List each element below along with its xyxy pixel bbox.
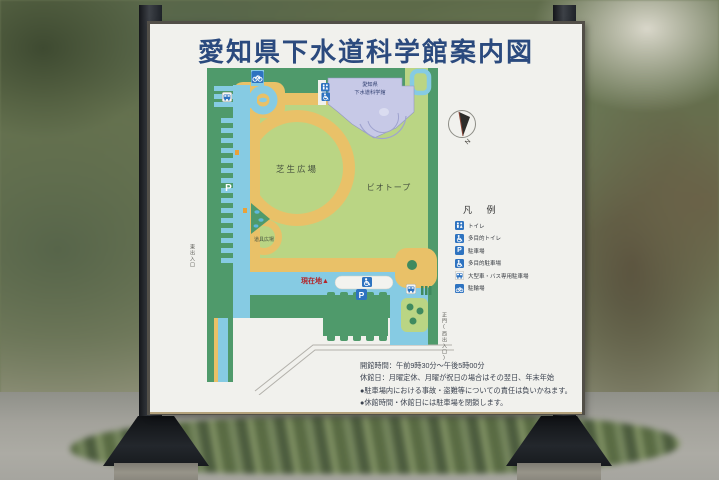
museum-building-label-line1: 愛知県 [334, 82, 406, 90]
note-closed-days: 休館日：月曜定休、月曜が祝日の場合はその翌日、年末年始 [360, 372, 580, 384]
sign-board: 愛知県下水道科学館案内図 [150, 24, 582, 414]
accessible-parking-icon [455, 259, 464, 268]
bus-parking-icon [455, 271, 464, 280]
sign-post-base-right [506, 416, 612, 480]
east-entrance-label: 東出入口 [189, 244, 196, 268]
parking-p-marker: P [359, 290, 365, 300]
legend-item-bicycle-parking: 駐輪場 [455, 284, 577, 293]
sign-title: 愛知県下水道科学館案内図 [150, 32, 582, 69]
legend-item-accessible-toilet: 多目的トイレ [455, 234, 577, 243]
parking-icon-letter: P [457, 247, 462, 254]
legend-item-accessible-parking: 多目的駐車場 [455, 259, 577, 268]
photo-of-park-guide-sign: 愛知県下水道科学館案内図 [0, 0, 719, 480]
west-gate-label: 正門(西出入口) [441, 312, 448, 362]
museum-building-label: 愛知県 下水道科学館 [334, 82, 406, 97]
parking-icon: P [455, 246, 464, 255]
post-base-pedestal [517, 463, 601, 480]
lawn-plaza-label: 芝生広場 [257, 163, 337, 175]
legend-title: 凡 例 [463, 203, 577, 216]
legend-item-bus-parking: 大型車・バス専用駐車場 [455, 271, 577, 280]
legend-item-label: 多目的駐車場 [468, 259, 501, 267]
legend-item-toilet: トイレ [455, 221, 577, 230]
legend-item-label: トイレ [468, 222, 485, 230]
legend-item-label: 駐輪場 [468, 284, 485, 292]
sign-notes: 開館時間：午前9時30分～午後5時00分 休館日：月曜定休、月曜が祝日の場合はそ… [360, 360, 580, 410]
museum-building-label-line2: 下水道科学館 [334, 90, 406, 98]
accessible-toilet-icon [455, 234, 464, 243]
toilet-icon [455, 221, 464, 230]
tool-plaza-label: 道具広場 [234, 236, 294, 243]
note-parking-liability: ●駐車場内における事故・盗難等についての責任は負いかねます。 [360, 385, 580, 397]
current-location-label: 現在地▲ [301, 276, 329, 286]
post-base-cap [506, 416, 612, 466]
post-base-pedestal [114, 463, 198, 480]
note-parking-closure: ●休館時間・休館日には駐車場を閉鎖します。 [360, 397, 580, 409]
legend: 凡 例 トイレ 多目的トイレ P 駐車場 多目的駐車場 大型車・バス専用駐車場 [455, 203, 577, 297]
park-map-drawing: N P P [175, 65, 485, 395]
note-opening-hours: 開館時間：午前9時30分～午後5時00分 [360, 360, 580, 372]
post-base-cap [103, 416, 209, 466]
compass-north-label: N [464, 138, 472, 146]
legend-item-label: 大型車・バス専用駐車場 [468, 272, 529, 280]
biotope-label: ビオトープ [349, 182, 429, 193]
roadside-p-marker: P [225, 183, 232, 194]
bicycle-parking-icon [455, 284, 464, 293]
legend-item-parking: P 駐車場 [455, 246, 577, 255]
legend-item-label: 多目的トイレ [468, 234, 501, 242]
park-map: N P P 芝生広場 ビオトープ 道具広場 愛知県 下水道科学館 現在地▲ [175, 65, 485, 395]
sign-post-base-left [103, 416, 209, 480]
legend-item-label: 駐車場 [468, 247, 485, 255]
